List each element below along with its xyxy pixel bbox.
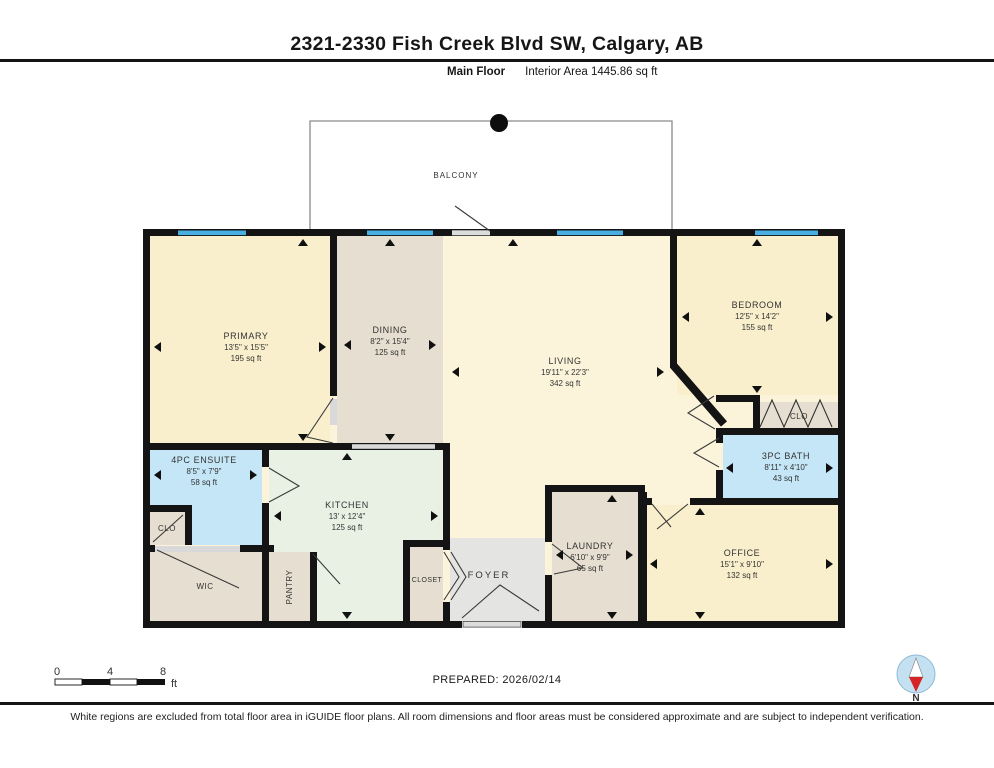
label-clo-bedroom: CLO xyxy=(790,412,808,421)
balcony-door-panel xyxy=(452,230,490,235)
svg-text:125 sq ft: 125 sq ft xyxy=(375,348,406,357)
svg-text:KITCHEN: KITCHEN xyxy=(325,500,369,510)
prepared-date: PREPARED: 2026/02/14 xyxy=(0,674,994,686)
svg-text:15'1" x 9'10": 15'1" x 9'10" xyxy=(720,560,764,569)
window-bedroom xyxy=(755,231,818,236)
window-living xyxy=(557,231,623,236)
wic-door-panel xyxy=(155,546,240,552)
label-pantry: PANTRY xyxy=(285,569,294,604)
label-closet: CLOSET xyxy=(412,577,443,584)
room-label-kitchen: KITCHEN 13' x 12'4" 125 sq ft xyxy=(325,500,369,532)
svg-text:132 sq ft: 132 sq ft xyxy=(727,571,758,580)
floorplan-page: 2321-2330 Fish Creek Blvd SW, Calgary, A… xyxy=(0,0,994,768)
svg-text:LAUNDRY: LAUNDRY xyxy=(566,541,613,551)
entry-door-panel xyxy=(463,622,521,628)
svg-text:195 sq ft: 195 sq ft xyxy=(231,354,262,363)
primary-door-panel xyxy=(330,399,337,425)
svg-text:19'11" x 22'3": 19'11" x 22'3" xyxy=(541,368,589,377)
svg-text:PRIMARY: PRIMARY xyxy=(223,331,268,341)
window-primary xyxy=(178,231,246,236)
floorplan-drawing: BALCONY xyxy=(0,0,994,768)
svg-text:DINING: DINING xyxy=(372,325,407,335)
svg-text:58 sq ft: 58 sq ft xyxy=(191,478,218,487)
svg-text:8'2" x 15'4": 8'2" x 15'4" xyxy=(370,337,410,346)
svg-text:4PC ENSUITE: 4PC ENSUITE xyxy=(171,455,237,465)
kitchen-passthrough xyxy=(352,444,435,449)
svg-text:125 sq ft: 125 sq ft xyxy=(332,523,363,532)
svg-text:6'10" x 9'9": 6'10" x 9'9" xyxy=(570,553,610,562)
label-foyer: FOYER xyxy=(468,570,511,581)
svg-text:BEDROOM: BEDROOM xyxy=(732,300,783,310)
room-closet xyxy=(410,547,443,621)
balcony-label: BALCONY xyxy=(433,171,478,180)
balcony-outline xyxy=(310,121,672,229)
svg-text:13'5" x 15'5": 13'5" x 15'5" xyxy=(224,343,268,352)
svg-text:13' x 12'4": 13' x 12'4" xyxy=(329,512,366,521)
svg-text:155 sq ft: 155 sq ft xyxy=(742,323,773,332)
window-dining xyxy=(367,231,433,236)
svg-text:8'11" x 4'10": 8'11" x 4'10" xyxy=(764,463,807,472)
svg-text:OFFICE: OFFICE xyxy=(724,548,761,558)
svg-text:65 sq ft: 65 sq ft xyxy=(577,564,604,573)
svg-text:12'5" x 14'2": 12'5" x 14'2" xyxy=(735,312,779,321)
balcony-door-swing xyxy=(455,206,490,231)
camera-point-icon xyxy=(490,114,508,132)
svg-text:8'5" x 7'9": 8'5" x 7'9" xyxy=(187,467,222,476)
svg-text:43 sq ft: 43 sq ft xyxy=(773,474,800,483)
svg-text:342 sq ft: 342 sq ft xyxy=(550,379,581,388)
label-wic: WIC xyxy=(196,582,213,591)
svg-text:LIVING: LIVING xyxy=(548,356,581,366)
label-clo-left: CLO xyxy=(158,524,176,533)
disclaimer-text: White regions are excluded from total fl… xyxy=(0,711,994,723)
svg-text:3PC BATH: 3PC BATH xyxy=(762,451,810,461)
footer-divider xyxy=(0,702,994,705)
room-label-dining: DINING 8'2" x 15'4" 125 sq ft xyxy=(370,325,410,357)
